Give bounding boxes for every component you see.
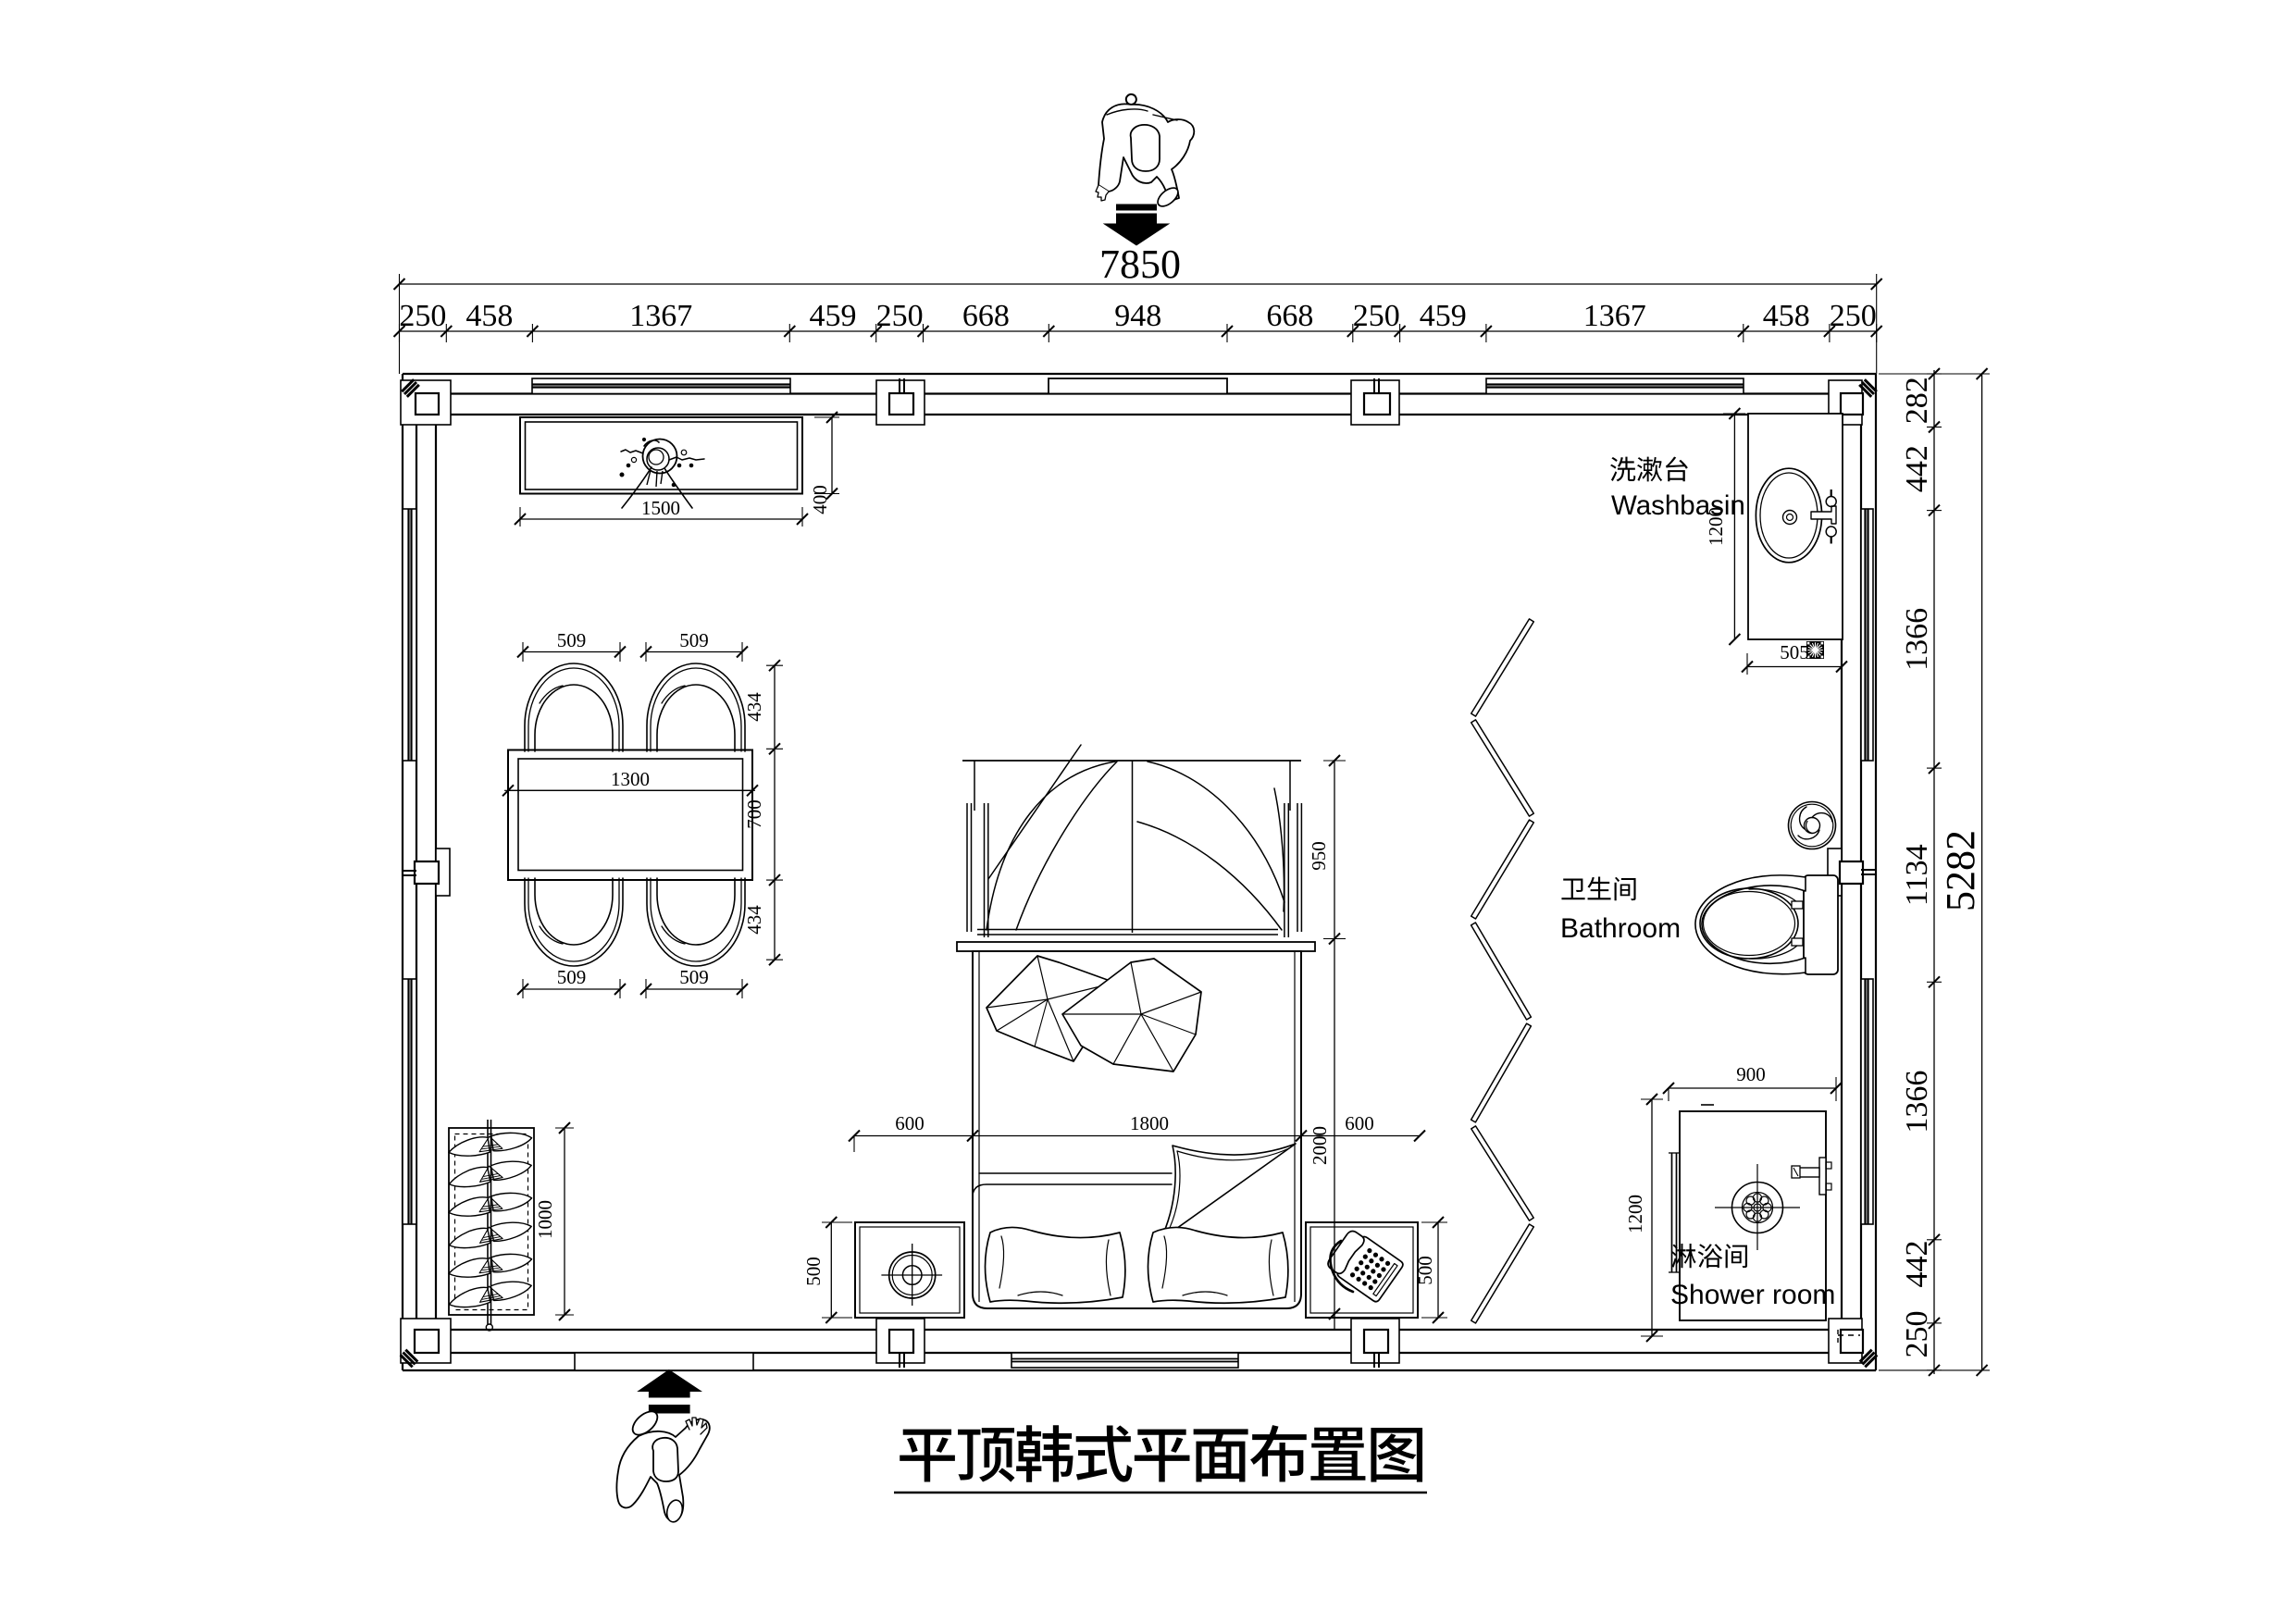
svg-text:1366: 1366: [1900, 608, 1934, 671]
svg-text:250: 250: [1900, 1311, 1934, 1358]
svg-text:509: 509: [679, 629, 709, 651]
svg-text:250: 250: [1830, 299, 1877, 333]
svg-text:282: 282: [1900, 377, 1934, 424]
svg-text:700: 700: [743, 799, 765, 829]
svg-text:250: 250: [399, 299, 446, 333]
svg-text:2000: 2000: [1309, 1126, 1331, 1165]
svg-text:948: 948: [1114, 299, 1161, 333]
svg-text:668: 668: [1266, 299, 1313, 333]
svg-text:1500: 1500: [641, 497, 680, 519]
svg-text:1134: 1134: [1900, 844, 1934, 906]
svg-text:1367: 1367: [629, 299, 692, 333]
svg-text:1366: 1366: [1900, 1071, 1934, 1134]
svg-text:1800: 1800: [1130, 1112, 1169, 1134]
svg-text:Shower room: Shower room: [1670, 1280, 1835, 1310]
svg-text:250: 250: [876, 299, 924, 333]
svg-text:668: 668: [962, 299, 1010, 333]
svg-text:442: 442: [1900, 1241, 1934, 1288]
svg-text:509: 509: [557, 629, 587, 651]
svg-text:7850: 7850: [1099, 242, 1181, 287]
svg-text:950: 950: [1308, 841, 1330, 871]
svg-text:509: 509: [557, 966, 587, 988]
svg-text:1200: 1200: [1624, 1195, 1646, 1233]
svg-text:505: 505: [1780, 641, 1809, 663]
svg-text:1300: 1300: [611, 768, 650, 790]
svg-text:1367: 1367: [1583, 299, 1646, 333]
svg-text:458: 458: [1763, 299, 1810, 333]
svg-text:500: 500: [802, 1257, 825, 1286]
svg-text:458: 458: [465, 299, 513, 333]
svg-text:459: 459: [810, 299, 857, 333]
svg-text:434: 434: [743, 692, 765, 722]
svg-text:600: 600: [895, 1112, 925, 1134]
svg-text:509: 509: [679, 966, 709, 988]
svg-text:250: 250: [1353, 299, 1400, 333]
svg-text:459: 459: [1420, 299, 1467, 333]
svg-text:Bathroom: Bathroom: [1560, 913, 1681, 944]
svg-text:600: 600: [1345, 1112, 1374, 1134]
svg-text:400: 400: [809, 485, 831, 514]
svg-text:434: 434: [743, 905, 765, 935]
svg-text:900: 900: [1736, 1063, 1766, 1085]
svg-text:442: 442: [1900, 445, 1934, 492]
svg-text:1200: 1200: [1705, 507, 1727, 546]
svg-text:1000: 1000: [534, 1200, 556, 1239]
svg-text:5282: 5282: [1938, 830, 1983, 911]
svg-text:500: 500: [1414, 1256, 1436, 1285]
